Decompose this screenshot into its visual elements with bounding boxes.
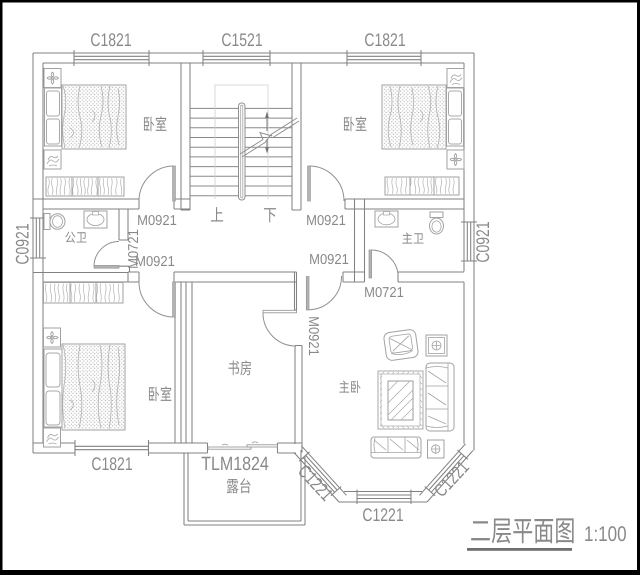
svg-text:C1821: C1821 — [90, 29, 131, 50]
svg-text:C1221: C1221 — [430, 456, 473, 501]
svg-text:上: 上 — [210, 206, 224, 225]
svg-text:M0721: M0721 — [125, 229, 142, 269]
svg-text:C1221: C1221 — [362, 504, 403, 525]
svg-text:公卫: 公卫 — [65, 231, 87, 246]
svg-text:卧室: 卧室 — [143, 115, 167, 134]
svg-text:二层平面图: 二层平面图 — [470, 517, 576, 548]
svg-text:下: 下 — [263, 206, 277, 225]
svg-text:M0721: M0721 — [364, 284, 404, 301]
svg-text:C0921: C0921 — [472, 221, 493, 262]
svg-text:主卧: 主卧 — [339, 380, 361, 396]
svg-text:C1821: C1821 — [364, 29, 405, 50]
svg-text:C1821: C1821 — [91, 453, 132, 474]
svg-text:M0921: M0921 — [306, 212, 346, 229]
svg-text:TLM1824: TLM1824 — [201, 454, 269, 474]
svg-text:C0921: C0921 — [12, 223, 33, 264]
svg-text:C1521: C1521 — [221, 29, 262, 50]
svg-text:1:100: 1:100 — [584, 522, 627, 546]
svg-text:M0921: M0921 — [306, 316, 323, 356]
svg-text:M0921: M0921 — [309, 251, 349, 267]
svg-text:卧室: 卧室 — [148, 385, 172, 404]
svg-text:卧室: 卧室 — [343, 115, 367, 134]
svg-text:书房: 书房 — [228, 359, 252, 378]
svg-text:主卫: 主卫 — [402, 232, 424, 247]
svg-text:M0921: M0921 — [137, 212, 177, 229]
svg-text:露台: 露台 — [226, 478, 251, 496]
